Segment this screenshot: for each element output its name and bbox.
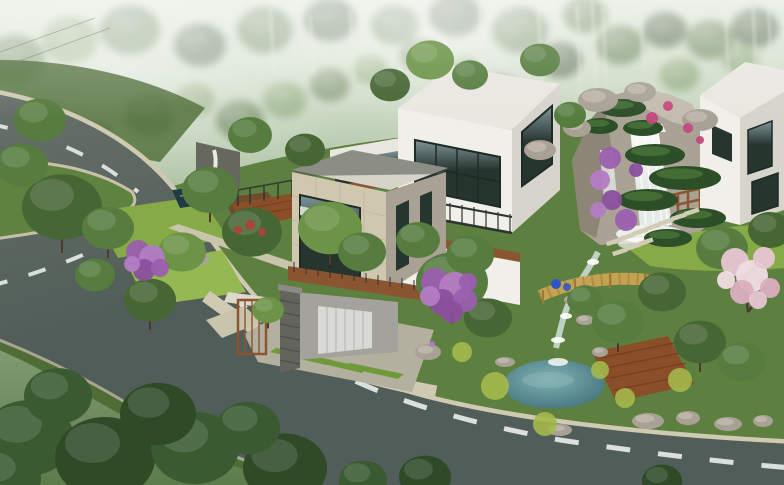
boulder-highlight xyxy=(717,418,734,425)
flower-accent xyxy=(245,220,255,230)
stream-fall-3 xyxy=(560,313,572,319)
tree-canopy-light xyxy=(163,235,189,254)
tree-canopy-light xyxy=(129,282,158,303)
flower-accent xyxy=(452,342,472,362)
boulder-highlight xyxy=(678,412,692,419)
flower-accent xyxy=(258,228,266,236)
boulder-highlight xyxy=(755,416,767,422)
tree-canopy-light xyxy=(571,287,591,301)
tree-canopy-light xyxy=(228,211,261,235)
tree-canopy-light xyxy=(79,261,101,277)
pink-blossom xyxy=(749,291,767,309)
tree-canopy-light xyxy=(679,324,708,345)
blue-tarp xyxy=(551,279,561,289)
right-villa-window-2 xyxy=(748,121,772,174)
flower-accent xyxy=(668,368,692,392)
tree-canopy-light xyxy=(451,238,477,257)
purple-blossom xyxy=(683,123,693,133)
purple-blossom xyxy=(615,209,637,231)
foreground-tree-canopy-light xyxy=(222,406,257,432)
pond-inflow-foam xyxy=(548,358,568,366)
flower-accent xyxy=(429,341,435,347)
flower-accent xyxy=(591,361,609,379)
stream-fall-1 xyxy=(587,259,599,265)
purple-blossom xyxy=(590,170,610,190)
foreground-tree-canopy-light xyxy=(404,459,433,480)
pink-blossom xyxy=(717,271,735,289)
boulder-highlight xyxy=(497,358,509,363)
tree-canopy-light xyxy=(701,230,730,251)
flower-accent xyxy=(533,412,557,436)
foreground-tree-canopy-light xyxy=(646,467,668,483)
haze-overlay xyxy=(0,0,784,120)
topiary-pad-light xyxy=(624,191,663,201)
purple-blossom xyxy=(696,136,704,144)
purple-blossom xyxy=(629,163,643,177)
tree-canopy-light xyxy=(255,299,273,312)
tree-canopy-light xyxy=(188,170,219,192)
tree-canopy-light xyxy=(723,345,749,364)
aerial-rendering xyxy=(0,0,784,485)
foreground-tree-canopy-light xyxy=(31,372,68,399)
tree-canopy-light xyxy=(643,275,669,294)
purple-blossom xyxy=(441,301,463,323)
purple-blossom xyxy=(599,147,621,169)
topiary-pad-light xyxy=(649,231,680,239)
tree-canopy-light xyxy=(400,225,424,243)
pink-blossom xyxy=(753,247,775,269)
boulder-highlight xyxy=(418,346,434,354)
tree-canopy-light xyxy=(752,215,776,233)
flower-accent xyxy=(615,388,635,408)
purple-blossom xyxy=(459,273,477,291)
tree-canopy-light xyxy=(232,120,256,138)
foreground-tree-canopy-light xyxy=(128,387,170,417)
flower-accent xyxy=(481,372,509,400)
tree-canopy-light xyxy=(343,235,369,254)
foreground-tree-canopy-light xyxy=(65,423,120,463)
purple-blossom xyxy=(151,259,169,277)
tree-canopy-light xyxy=(87,210,116,231)
boulder-highlight xyxy=(594,348,604,353)
scene-canvas xyxy=(0,0,784,485)
topiary-pad-light xyxy=(631,146,670,156)
boulder-highlight xyxy=(635,415,654,423)
pond-reflection xyxy=(522,372,574,388)
blue-tarp-2 xyxy=(563,283,571,291)
purple-blossom xyxy=(590,202,606,218)
boulder-highlight xyxy=(578,316,589,321)
foreground-tree-canopy-light xyxy=(344,463,370,482)
stream-fall-4 xyxy=(551,337,565,343)
tree-canopy-light xyxy=(30,179,74,211)
boulder-highlight xyxy=(527,142,546,152)
tree-canopy-light xyxy=(304,206,339,232)
purple-blossom xyxy=(420,286,440,306)
tree-canopy-light xyxy=(1,147,30,168)
topiary-pad-light xyxy=(656,168,703,179)
purple-blossom xyxy=(124,256,140,272)
tree-canopy-light xyxy=(289,136,311,152)
flower-accent xyxy=(234,226,242,234)
tree-canopy-light xyxy=(597,304,626,325)
